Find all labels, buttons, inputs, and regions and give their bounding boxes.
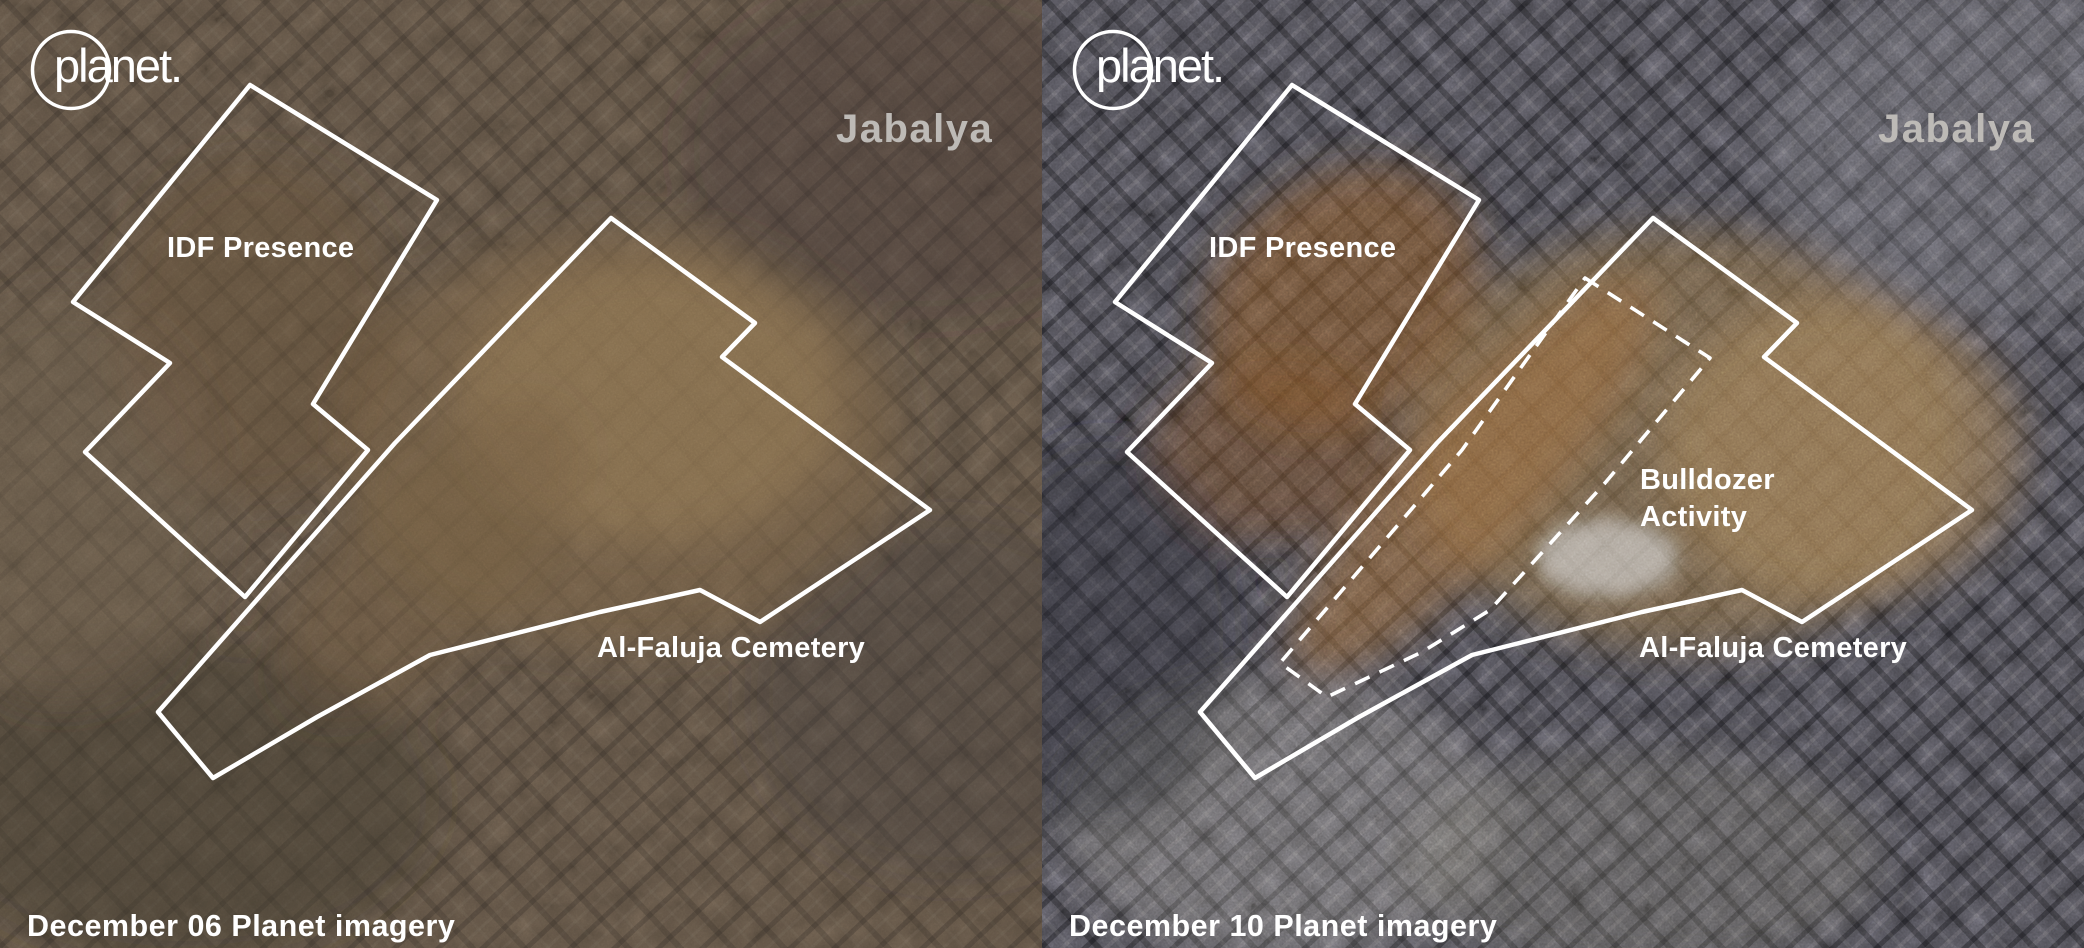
planet-logo-wordmark: planet.: [1096, 39, 1223, 92]
satellite-image-after: planet. Jabalya IDF Presence Bulldozer A…: [1042, 0, 2084, 948]
date-caption-before: December 06 Planet imagery: [27, 909, 455, 943]
satellite-image-before: planet. Jabalya IDF Presence Al-Faluja C…: [0, 0, 1042, 948]
location-label: Jabalya: [1878, 107, 2035, 151]
panel-after: planet. Jabalya IDF Presence Bulldozer A…: [1042, 0, 2084, 948]
location-label: Jabalya: [836, 107, 993, 151]
date-caption-after: December 10 Planet imagery: [1069, 909, 1497, 943]
cemetery-label: Al-Faluja Cemetery: [1639, 632, 1907, 664]
bulldozer-activity-label-line1: Bulldozer: [1640, 464, 1775, 496]
idf-presence-label: IDF Presence: [1209, 232, 1396, 264]
panel-before: planet. Jabalya IDF Presence Al-Faluja C…: [0, 0, 1042, 948]
idf-presence-label: IDF Presence: [167, 232, 354, 264]
cemetery-label: Al-Faluja Cemetery: [597, 632, 865, 664]
planet-logo-wordmark: planet.: [54, 39, 181, 92]
bulldozer-activity-label-line2: Activity: [1640, 501, 1747, 533]
